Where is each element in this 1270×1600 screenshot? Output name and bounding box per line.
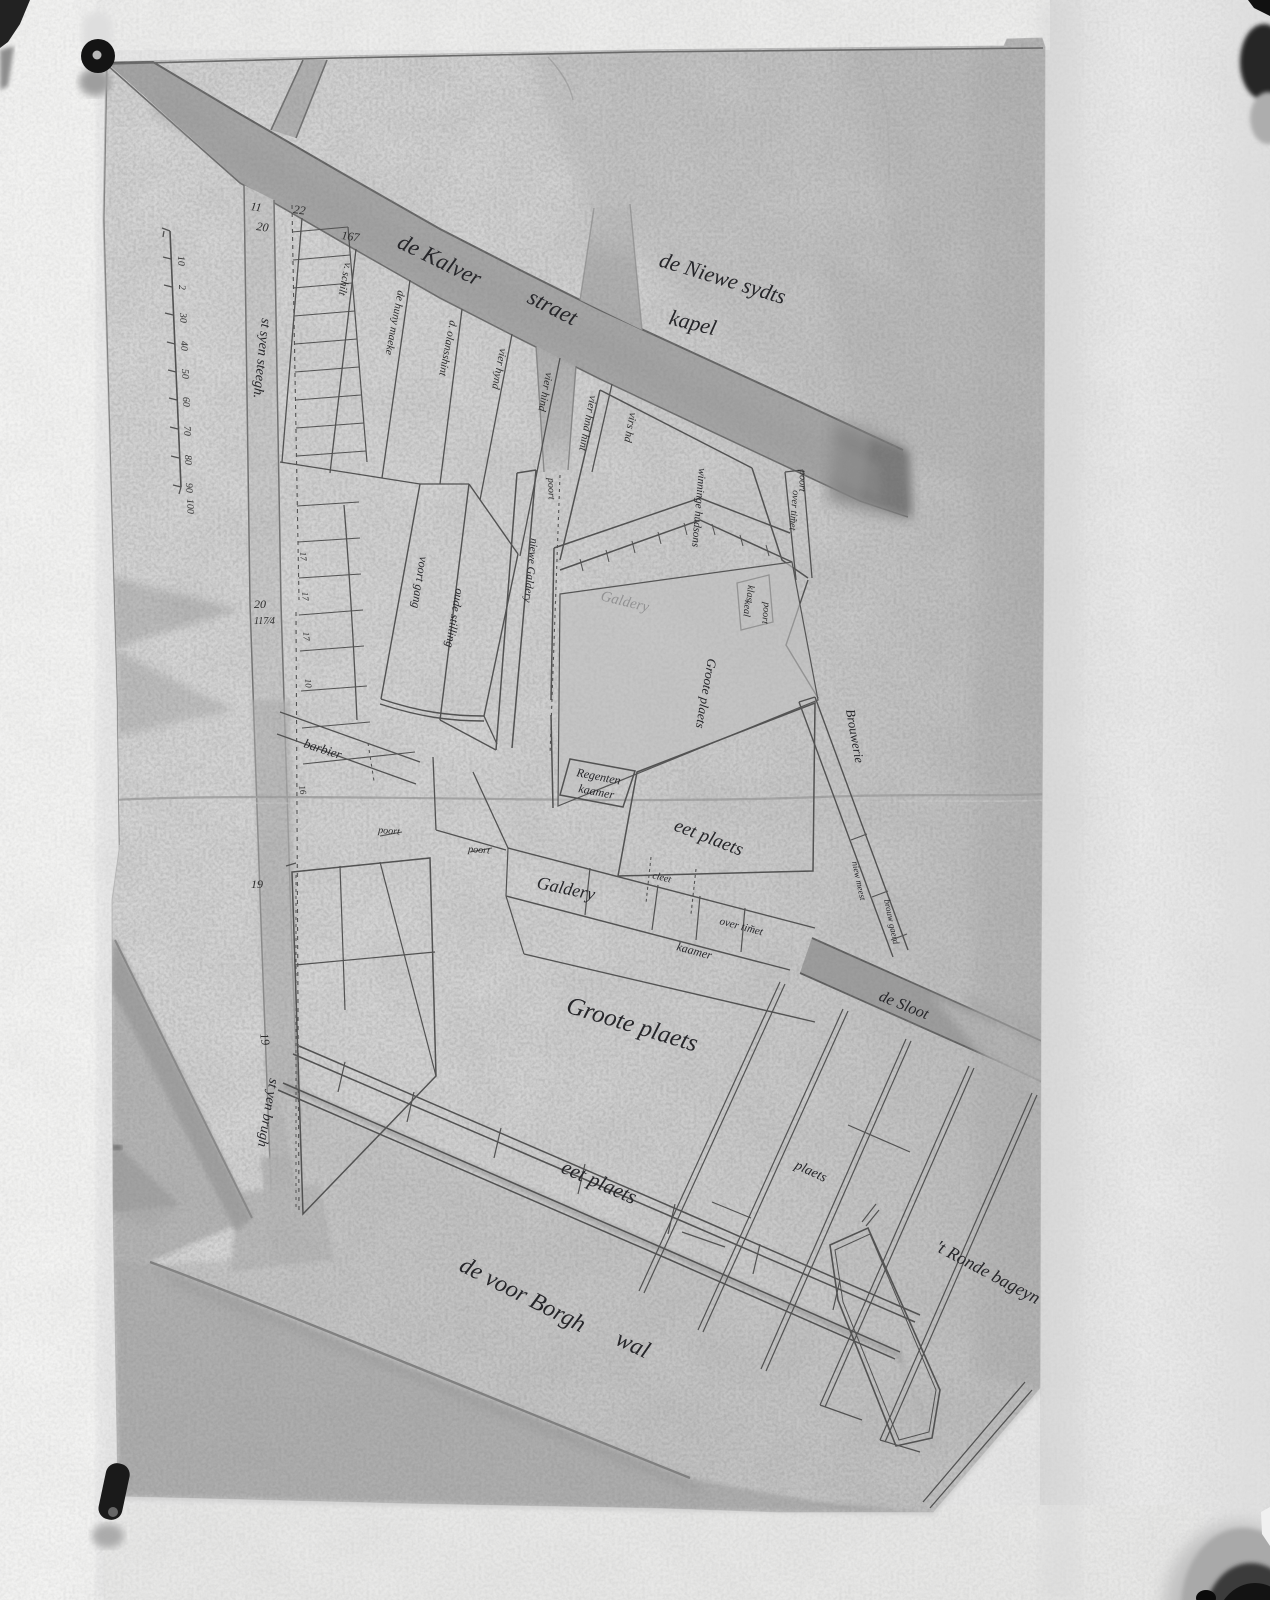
svg-text:11: 11 xyxy=(250,199,263,214)
svg-text:17: 17 xyxy=(301,631,312,641)
svg-text:90: 90 xyxy=(183,483,194,493)
svg-text:10: 10 xyxy=(175,256,186,266)
svg-text:167: 167 xyxy=(341,228,362,245)
svg-text:poort: poort xyxy=(796,469,808,492)
svg-text:117⁄4: 117⁄4 xyxy=(254,616,275,627)
svg-text:100: 100 xyxy=(184,499,196,514)
svg-text:40: 40 xyxy=(178,341,189,351)
svg-text:80: 80 xyxy=(182,455,193,465)
svg-text:19: 19 xyxy=(251,877,263,891)
svg-text:20: 20 xyxy=(254,597,266,611)
svg-text:2: 2 xyxy=(176,285,187,290)
svg-text:19: 19 xyxy=(257,1032,273,1046)
svg-text:10: 10 xyxy=(303,678,314,688)
svg-text:30: 30 xyxy=(177,312,188,323)
svg-text:17: 17 xyxy=(300,591,311,601)
svg-text:keal: keal xyxy=(741,600,753,618)
svg-text:60: 60 xyxy=(180,397,191,407)
svg-text:70: 70 xyxy=(181,426,192,436)
svg-text:22: 22 xyxy=(293,202,307,218)
svg-text:poort: poort xyxy=(545,477,557,500)
svg-text:20: 20 xyxy=(256,219,270,235)
svg-text:17: 17 xyxy=(298,551,309,561)
svg-text:poort: poort xyxy=(377,825,401,838)
svg-text:poort: poort xyxy=(759,601,772,625)
svg-text:poort: poort xyxy=(467,844,491,857)
svg-text:50: 50 xyxy=(179,369,190,379)
